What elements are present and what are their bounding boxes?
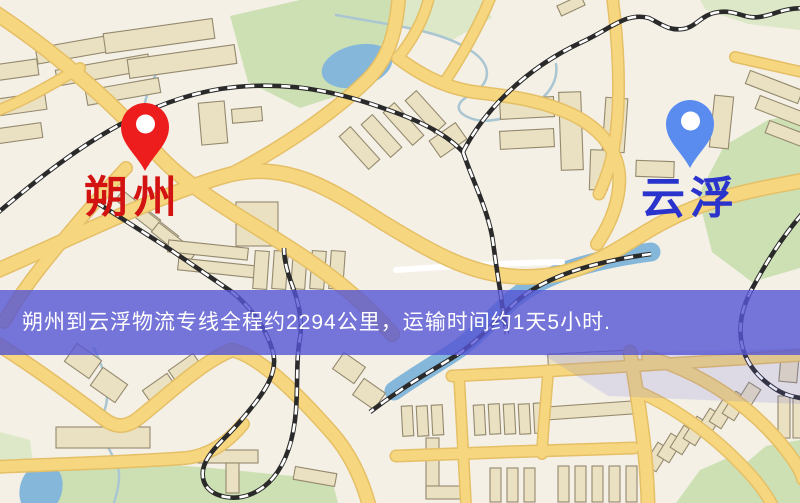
map-canvas[interactable]	[0, 0, 800, 503]
destination-city-label: 云浮	[641, 177, 739, 221]
route-info-text: 朔州到云浮物流专线全程约2294公里，运输时间约1天5小时.	[22, 310, 611, 335]
origin-city-label: 朔州	[84, 176, 182, 220]
logistics-route-map: 朔州到云浮物流专线全程约2294公里，运输时间约1天5小时. 朔州 云浮	[0, 0, 800, 503]
route-info-banner: 朔州到云浮物流专线全程约2294公里，运输时间约1天5小时.	[0, 290, 800, 355]
